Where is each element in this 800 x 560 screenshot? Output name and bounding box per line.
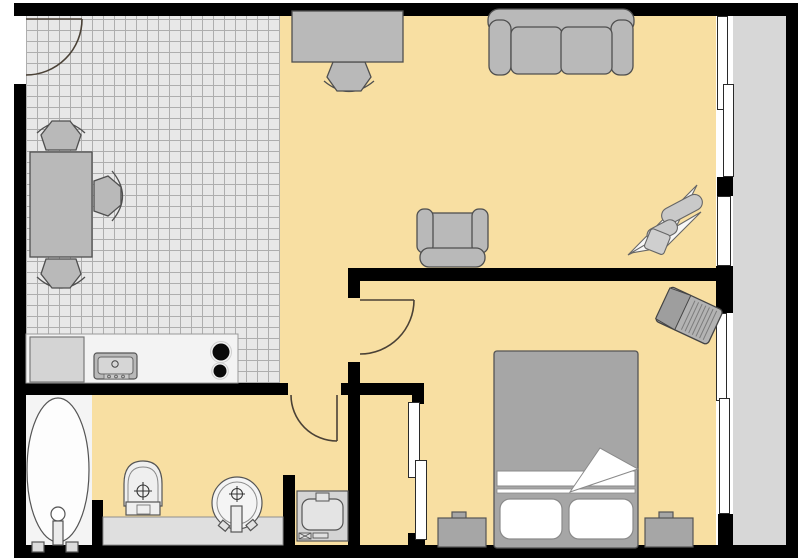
desk-chair — [327, 62, 371, 91]
tub-foot-right — [66, 542, 78, 552]
double-bed — [494, 351, 638, 548]
kitchen-sink — [94, 353, 137, 379]
toilet — [124, 461, 162, 515]
furniture-layer — [0, 0, 800, 560]
pillow-left — [500, 499, 562, 539]
tub-drain — [51, 507, 65, 521]
corner-tv — [655, 286, 724, 345]
bed-sheet-line — [497, 489, 635, 493]
tub-foot-left — [32, 542, 44, 552]
dining-table-set — [30, 121, 123, 288]
fridge — [30, 337, 84, 382]
bathtub — [27, 398, 89, 552]
nightstand-left — [438, 512, 486, 547]
washer-detergent-box — [316, 493, 329, 501]
dining-table — [30, 152, 92, 257]
wash-basin — [212, 477, 262, 532]
sofa-cushion-right — [561, 27, 612, 74]
pillow-right — [569, 499, 633, 539]
desk-group — [292, 11, 403, 92]
washer-controls — [299, 533, 328, 539]
sofa — [488, 9, 634, 75]
sofa-arm-left — [489, 20, 511, 75]
bedroom-door — [360, 300, 414, 354]
desk — [292, 11, 403, 62]
plant — [628, 185, 705, 255]
armchair — [417, 209, 488, 267]
vanity-counter — [103, 517, 283, 545]
sofa-cushion-left — [511, 27, 562, 74]
bathroom-door — [291, 395, 337, 441]
dining-chair-east — [94, 176, 121, 216]
armchair-front — [420, 248, 485, 267]
washing-machine — [297, 491, 348, 541]
basin-faucet — [231, 506, 242, 532]
burner-large — [213, 344, 230, 361]
tub-faucet — [53, 521, 63, 545]
floor-plan — [0, 0, 800, 560]
burner-small — [214, 365, 227, 378]
sofa-arm-right — [611, 20, 633, 75]
nightstand-right — [645, 512, 693, 547]
entrance-door — [26, 19, 82, 75]
armchair-arm-right — [472, 209, 488, 253]
armchair-cushion — [431, 213, 473, 251]
washer-drum — [302, 499, 343, 530]
armchair-arm-left — [417, 209, 433, 253]
kitchen-counter — [26, 334, 238, 383]
